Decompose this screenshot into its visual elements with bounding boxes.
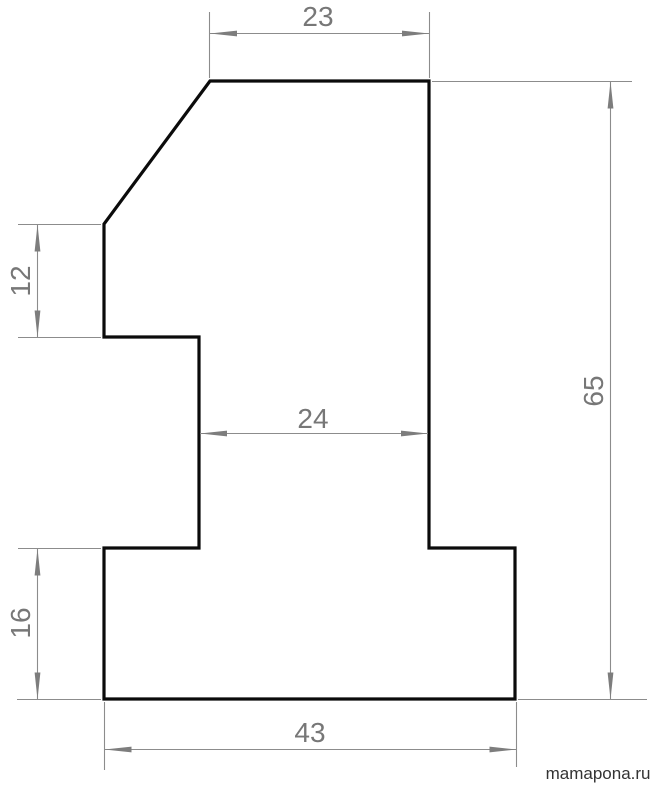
svg-text:65: 65	[578, 375, 609, 406]
svg-text:43: 43	[294, 717, 325, 748]
svg-text:24: 24	[297, 403, 328, 434]
svg-text:23: 23	[302, 1, 333, 32]
svg-text:mamapona.ru: mamapona.ru	[546, 764, 651, 783]
svg-text:12: 12	[5, 265, 36, 296]
svg-text:16: 16	[5, 607, 36, 638]
